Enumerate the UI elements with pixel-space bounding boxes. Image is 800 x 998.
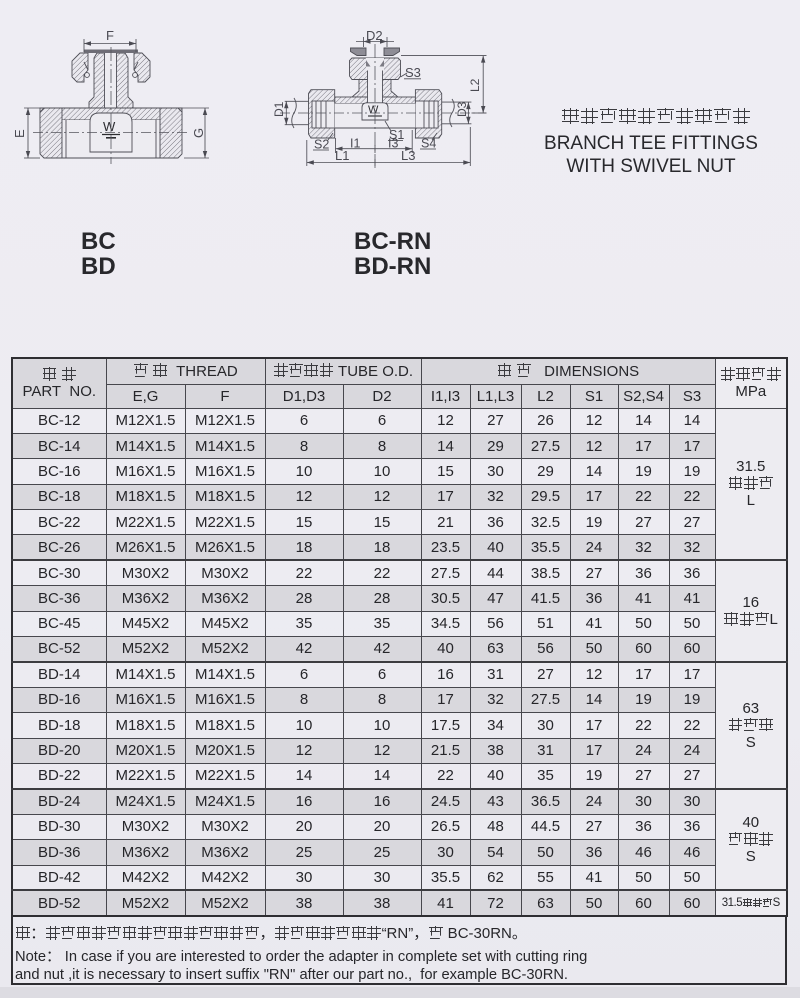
svg-text:G: G bbox=[191, 128, 206, 138]
svg-text:S2: S2 bbox=[314, 138, 329, 152]
svg-text:E: E bbox=[12, 129, 27, 138]
svg-text:F: F bbox=[106, 28, 114, 43]
svg-text:D1: D1 bbox=[272, 101, 286, 117]
svg-text:S3: S3 bbox=[405, 65, 421, 80]
svg-text:W: W bbox=[368, 104, 379, 116]
svg-text:D2: D2 bbox=[366, 28, 383, 43]
svg-text:W: W bbox=[103, 119, 116, 134]
svg-text:S4: S4 bbox=[421, 137, 436, 151]
svg-text:L3: L3 bbox=[401, 148, 415, 163]
svg-text:D3: D3 bbox=[455, 101, 469, 117]
svg-text:L1: L1 bbox=[335, 148, 349, 163]
svg-text:L2: L2 bbox=[468, 78, 482, 92]
